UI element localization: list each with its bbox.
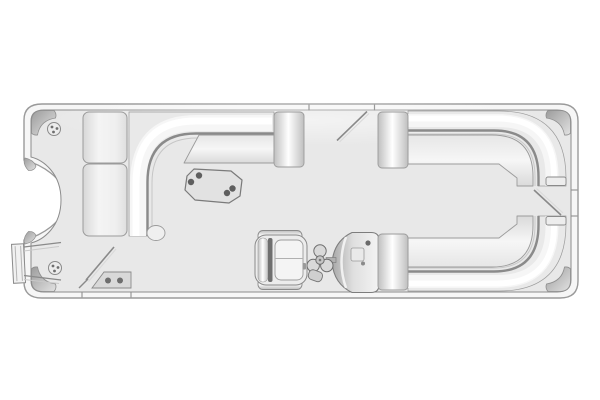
- dot: [229, 185, 235, 191]
- boat-floorplan-diagram: [0, 0, 600, 400]
- boat-floorplan-page: [0, 0, 600, 400]
- midship-deck-fitting: [49, 262, 62, 275]
- bench-end-cap: [546, 217, 566, 226]
- captains-chair: [255, 231, 307, 290]
- console-panel: [351, 248, 364, 261]
- console-side-mark: [303, 263, 307, 270]
- dot: [117, 278, 123, 284]
- stern-armrest: [378, 234, 408, 290]
- chair-seat-cushion: [275, 240, 303, 280]
- dot: [52, 131, 55, 134]
- fitting-ring: [48, 123, 61, 136]
- backrest-end-pod: [147, 226, 165, 241]
- bench-end-cap: [546, 177, 566, 186]
- dot: [53, 270, 56, 273]
- bow-armrest: [274, 112, 304, 167]
- cocktail-table: [185, 169, 242, 203]
- dot: [196, 172, 202, 178]
- wheel-hub-dot: [319, 259, 322, 262]
- dot: [57, 266, 60, 269]
- bow-deck-fitting: [48, 123, 61, 136]
- dot: [52, 265, 55, 268]
- dot: [56, 127, 59, 130]
- console-switch-dot: [361, 262, 365, 266]
- dot: [224, 190, 230, 196]
- dot: [105, 278, 111, 284]
- chair-backrest-roll: [258, 238, 268, 282]
- ladder-frame: [12, 244, 26, 284]
- dot: [51, 126, 54, 129]
- dot: [188, 179, 194, 185]
- stern-armrest: [378, 112, 408, 168]
- fitting-ring: [49, 262, 62, 275]
- console-gauge-dot: [365, 240, 370, 245]
- side-seat-cushion-rear: [83, 164, 127, 236]
- top-seat-cushion: [184, 135, 274, 163]
- chair-backrest-seam: [268, 238, 273, 282]
- side-seat-cushion-front: [83, 112, 127, 163]
